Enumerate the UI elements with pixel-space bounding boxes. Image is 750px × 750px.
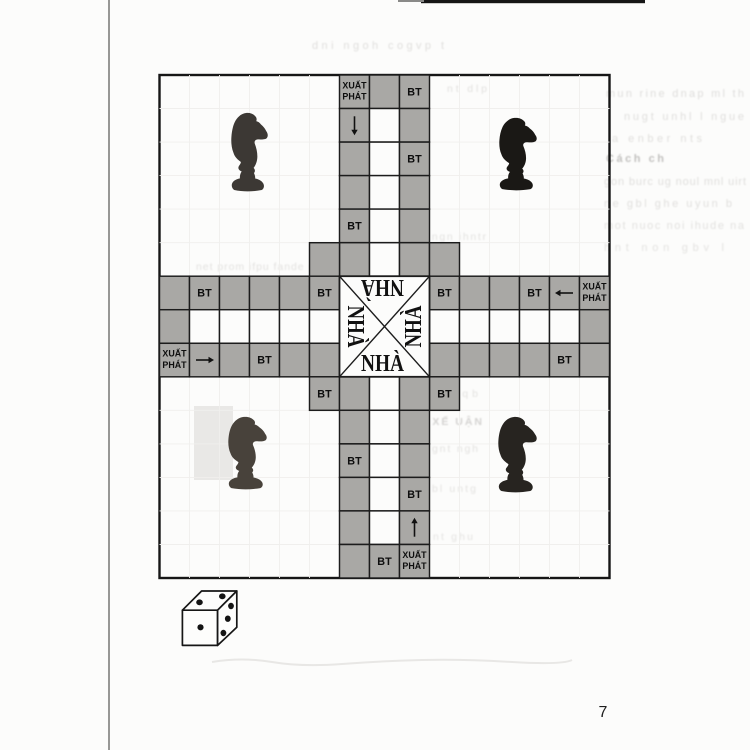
svg-text:PHÁT: PHÁT (582, 293, 607, 303)
svg-text:XUẤT: XUẤT (402, 550, 427, 560)
svg-text:BT: BT (197, 288, 212, 300)
svg-text:BT: BT (257, 355, 272, 367)
svg-text:BT: BT (407, 154, 422, 166)
svg-text:dni ngoh cogvp t: dni ngoh cogvp t (312, 40, 444, 52)
svg-text:mun rine dnap ml th: mun rine dnap ml th (606, 88, 744, 100)
svg-text:BT: BT (317, 388, 332, 400)
svg-text:7: 7 (599, 704, 608, 721)
svg-text:net prom ifpu fande nm: net prom ifpu fande nm (196, 261, 324, 273)
svg-text:NHÀ: NHÀ (361, 351, 405, 377)
svg-text:XUẤT: XUẤT (342, 80, 367, 90)
svg-text:XUẤT: XUẤT (582, 282, 607, 292)
svg-text:BT: BT (347, 221, 362, 233)
svg-text:BT: BT (347, 455, 362, 467)
svg-text:PHÁT: PHÁT (342, 92, 367, 102)
svg-text:BT: BT (527, 288, 542, 300)
svg-text:nugt unhl l ngue: nugt unhl l ngue (624, 111, 744, 123)
svg-text:gon burc ug noul mnl uirt: gon burc ug noul mnl uirt (604, 176, 746, 188)
svg-text:mot nuoc noi ihude na: mot nuoc noi ihude na (604, 220, 745, 232)
svg-text:NHÀ: NHÀ (360, 274, 404, 300)
svg-text:BT: BT (437, 388, 452, 400)
svg-text:BT: BT (437, 288, 452, 300)
svg-text:BT: BT (317, 288, 332, 300)
svg-text:ne gbl ghe uyun b: ne gbl ghe uyun b (604, 198, 732, 210)
svg-text:NHÀ: NHÀ (342, 306, 368, 349)
svg-text:BT: BT (557, 355, 572, 367)
svg-text:NHÀ: NHÀ (401, 305, 427, 348)
svg-text:BT: BT (407, 489, 422, 501)
svg-text:PHÁT: PHÁT (162, 360, 187, 370)
svg-text:XUẤT: XUẤT (162, 349, 187, 359)
svg-text:BT: BT (377, 556, 392, 568)
svg-text:PHÁT: PHÁT (402, 561, 427, 571)
svg-text:BT: BT (407, 87, 422, 99)
